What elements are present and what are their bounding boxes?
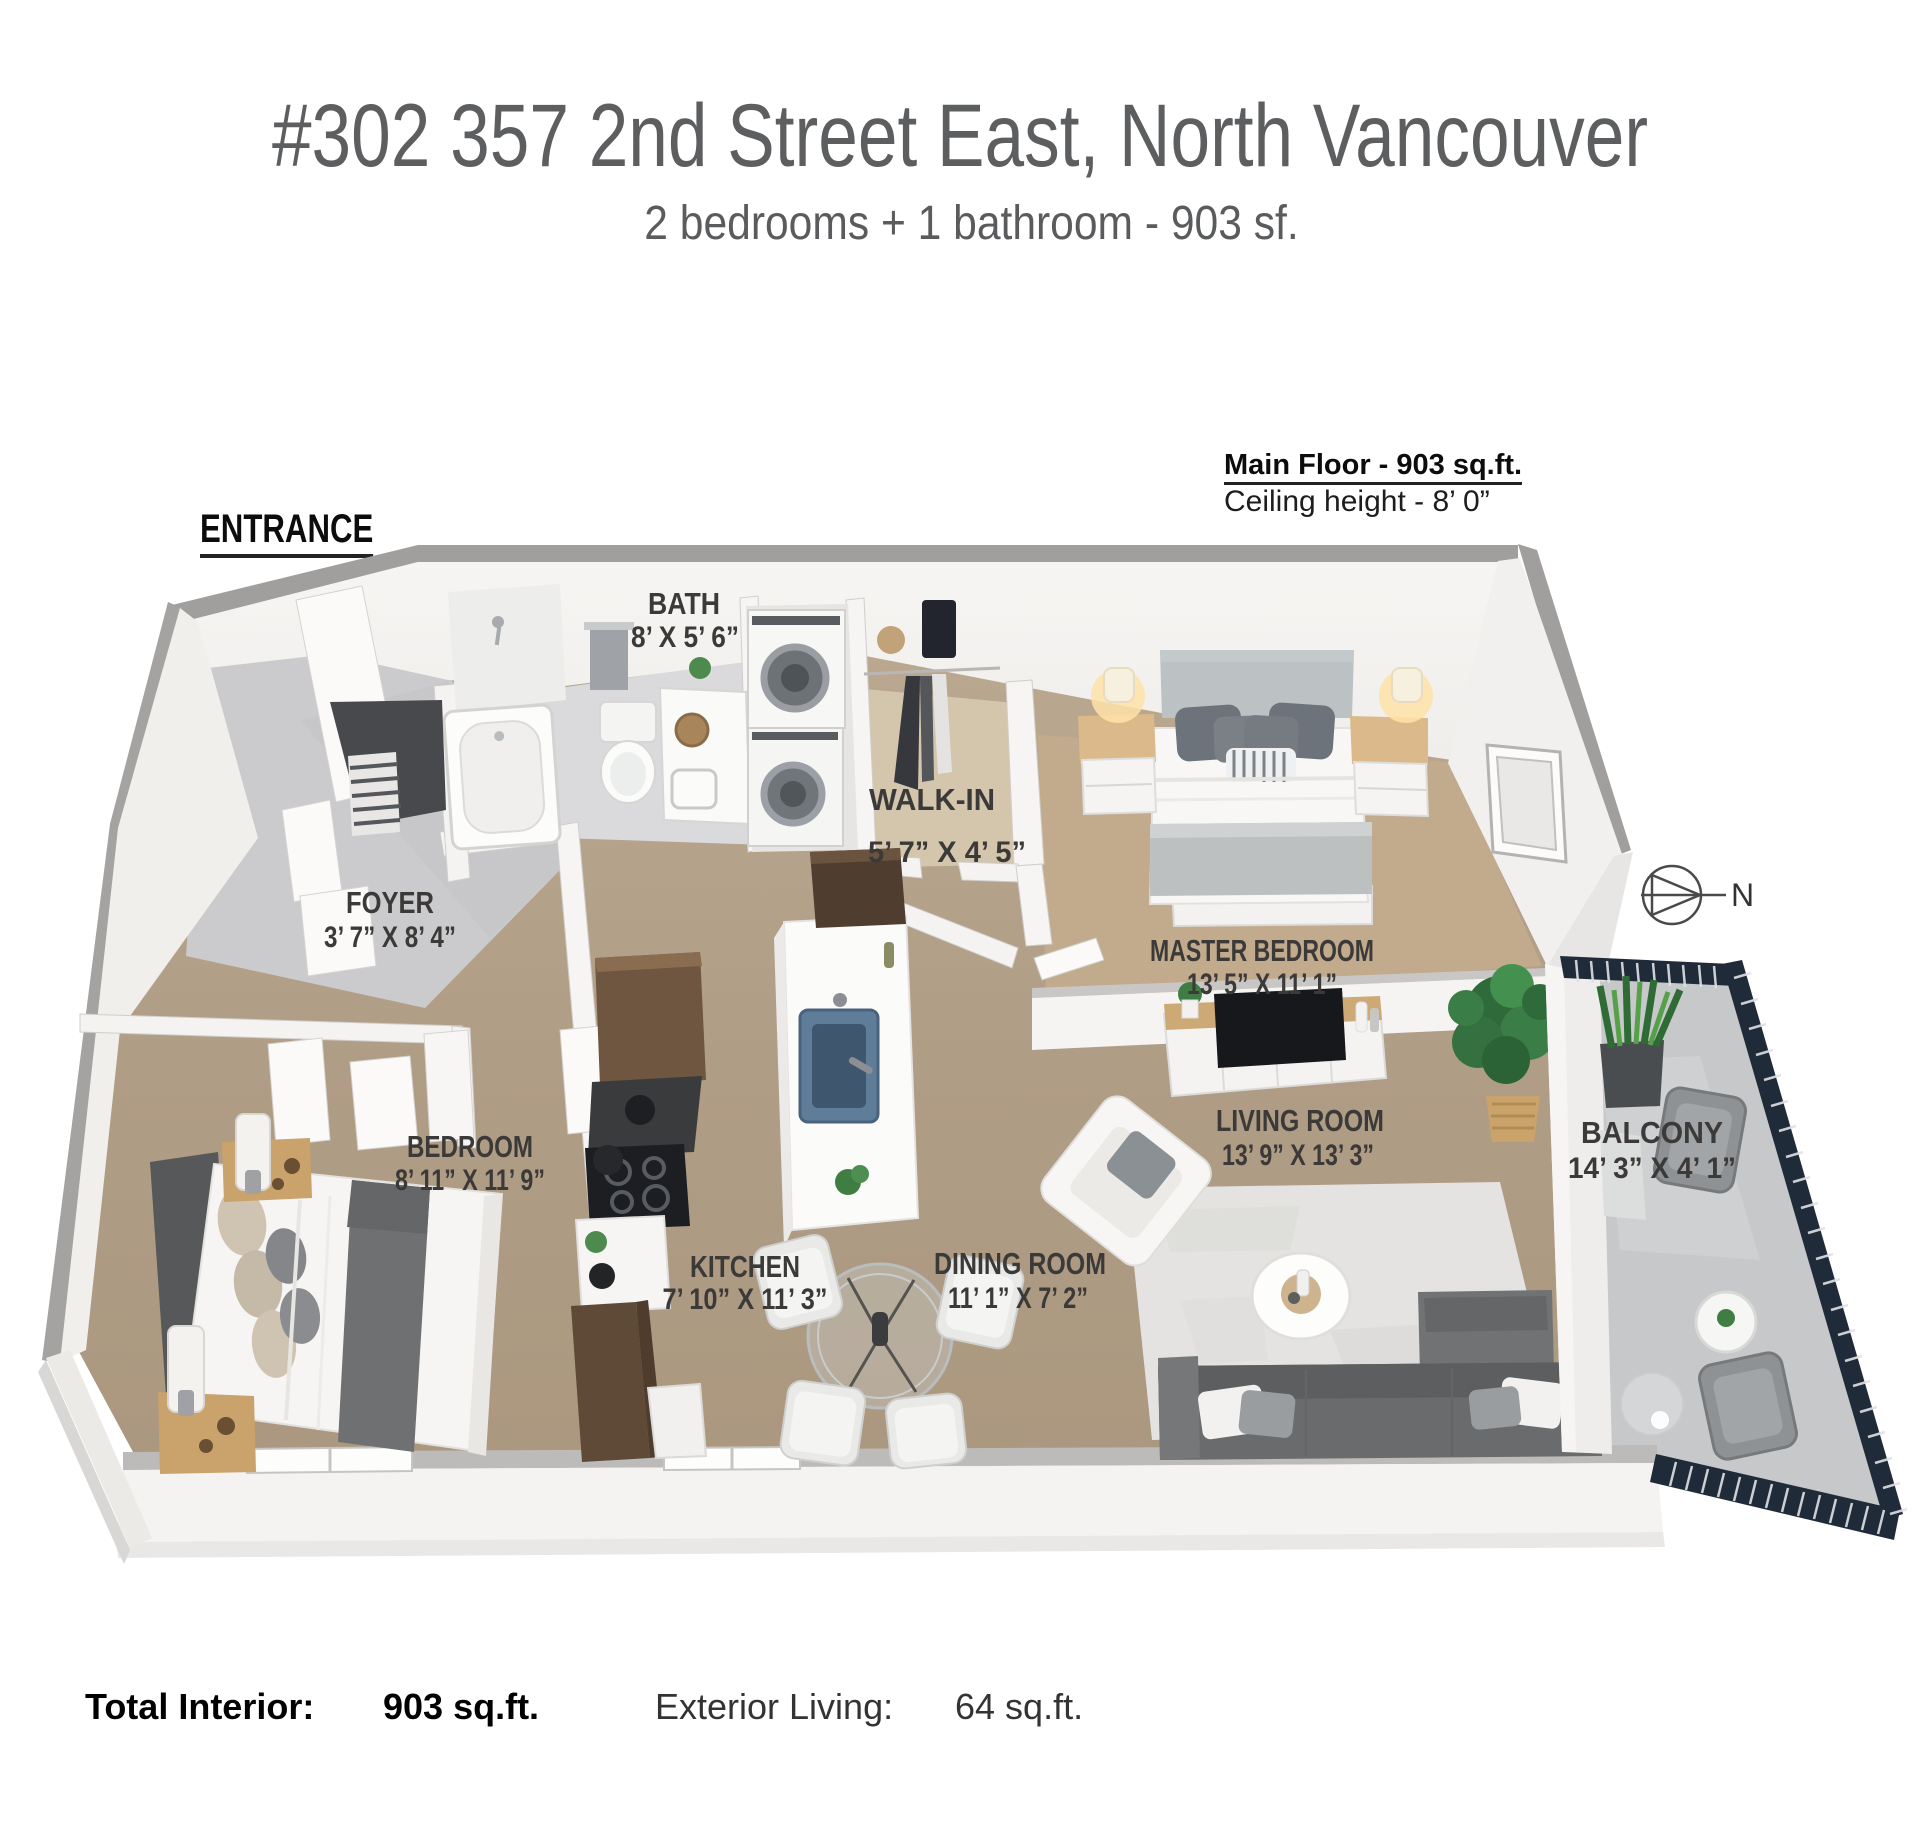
svg-text:13’ 9” X 13’ 3”: 13’ 9” X 13’ 3” [1222,1139,1374,1172]
svg-text:BEDROOM: BEDROOM [407,1129,533,1164]
svg-text:BALCONY: BALCONY [1581,1115,1723,1150]
svg-text:DINING ROOM: DINING ROOM [934,1246,1106,1281]
svg-text:7’ 10” X 11’ 3”: 7’ 10” X 11’ 3” [663,1283,828,1316]
svg-text:WALK-IN: WALK-IN [869,782,995,817]
svg-text:5’ 7” X 4’ 5”: 5’ 7” X 4’ 5” [868,836,1026,869]
svg-text:8’ X 5’ 6”: 8’ X 5’ 6” [631,621,739,654]
svg-text:N: N [1731,877,1754,913]
svg-text:13’ 5” X 11’ 1”: 13’ 5” X 11’ 1” [1187,968,1337,1001]
svg-text:KITCHEN: KITCHEN [690,1249,800,1284]
svg-text:11’ 1” X 7’ 2”: 11’ 1” X 7’ 2” [948,1282,1088,1315]
svg-text:8’ 11” X 11’ 9”: 8’ 11” X 11’ 9” [395,1164,545,1197]
svg-text:3’ 7” X 8’ 4”: 3’ 7” X 8’ 4” [324,921,456,954]
svg-text:FOYER: FOYER [346,885,434,920]
svg-text:LIVING ROOM: LIVING ROOM [1216,1103,1384,1138]
svg-text:MASTER BEDROOM: MASTER BEDROOM [1150,933,1374,968]
svg-text:14’ 3” X 4’ 1”: 14’ 3” X 4’ 1” [1568,1152,1736,1185]
svg-text:BATH: BATH [648,586,720,621]
